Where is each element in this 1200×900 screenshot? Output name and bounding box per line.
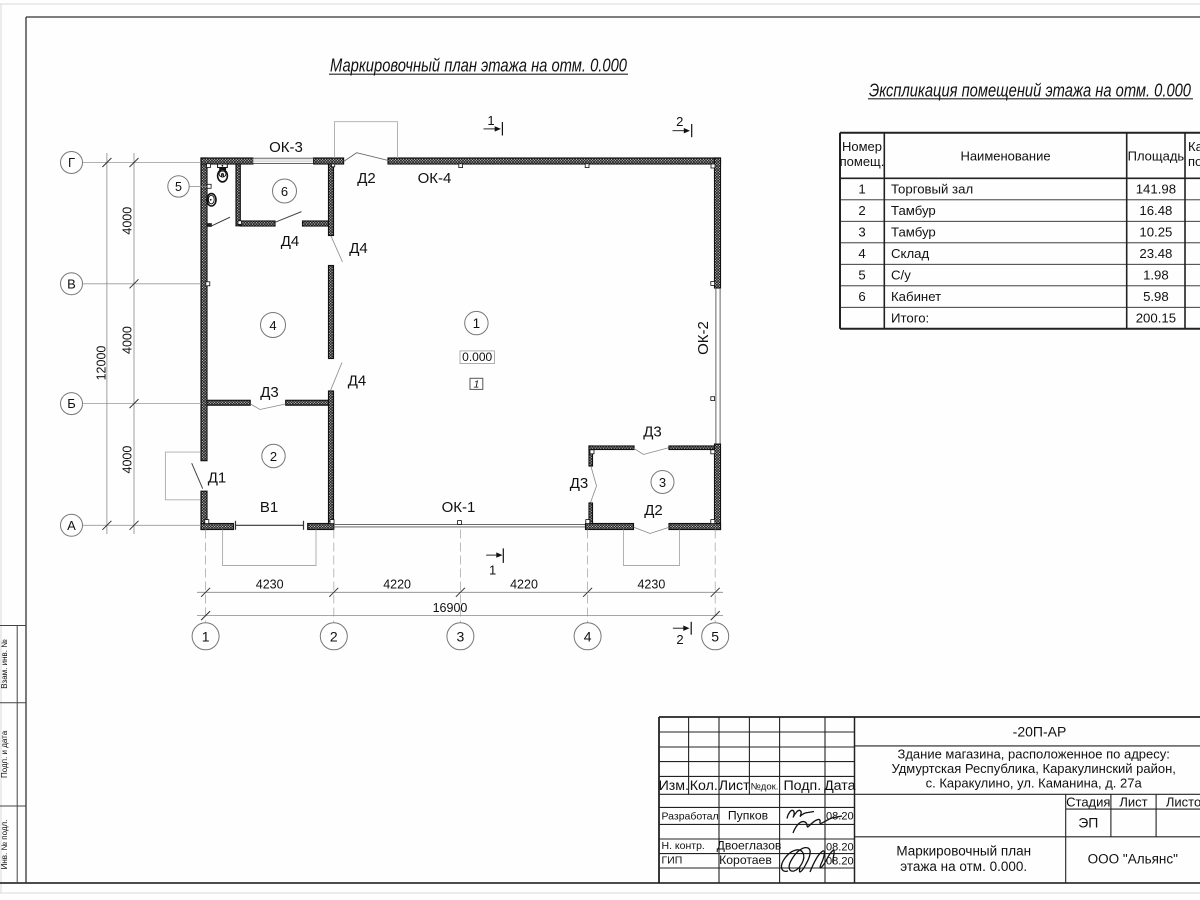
svg-text:1: 1 bbox=[858, 181, 865, 196]
svg-text:ОК-2: ОК-2 bbox=[695, 321, 712, 355]
svg-text:2: 2 bbox=[676, 114, 683, 129]
svg-text:Лист: Лист bbox=[719, 778, 750, 794]
svg-text:ГИП: ГИП bbox=[662, 855, 683, 867]
svg-text:Кол.: Кол. bbox=[690, 778, 718, 794]
svg-text:ООО "Альянс": ООО "Альянс" bbox=[1088, 852, 1178, 867]
svg-text:Склад: Склад bbox=[891, 246, 929, 261]
svg-text:Удмуртская Республика, Каракул: Удмуртская Республика, Каракулинский рай… bbox=[891, 761, 1175, 776]
svg-text:Лист: Лист bbox=[1119, 795, 1147, 810]
svg-text:1: 1 bbox=[473, 378, 479, 390]
svg-text:Коротаев: Коротаев bbox=[719, 853, 772, 867]
svg-text:Тамбур: Тамбур bbox=[891, 203, 936, 218]
svg-text:141.98: 141.98 bbox=[1136, 181, 1176, 196]
svg-text:4: 4 bbox=[858, 246, 865, 261]
svg-text:6: 6 bbox=[281, 184, 288, 199]
svg-text:5.98: 5.98 bbox=[1143, 289, 1169, 304]
svg-text:6: 6 bbox=[858, 289, 865, 304]
svg-text:Д1: Д1 bbox=[208, 470, 227, 487]
svg-text:3: 3 bbox=[858, 224, 865, 239]
svg-text:5: 5 bbox=[711, 628, 719, 644]
svg-text:Изм.: Изм. bbox=[659, 778, 689, 794]
svg-text:1: 1 bbox=[202, 628, 210, 644]
svg-text:Д2: Д2 bbox=[357, 170, 376, 187]
svg-text:4: 4 bbox=[269, 318, 276, 333]
svg-text:1: 1 bbox=[487, 113, 494, 128]
svg-text:ЭП: ЭП bbox=[1078, 815, 1098, 831]
svg-text:2: 2 bbox=[676, 632, 683, 647]
svg-text:Разработал: Разработал bbox=[662, 811, 719, 823]
svg-text:Д4: Д4 bbox=[281, 233, 300, 250]
svg-text:Маркировочный план этажа на от: Маркировочный план этажа на отм. 0.000 bbox=[330, 56, 627, 76]
svg-text:1.98: 1.98 bbox=[1143, 267, 1169, 282]
svg-text:Категория: Категория bbox=[1188, 139, 1200, 154]
svg-text:Подп.: Подп. bbox=[783, 778, 821, 794]
svg-text:Площадь: Площадь bbox=[1128, 149, 1185, 164]
svg-text:Д3: Д3 bbox=[260, 384, 279, 401]
svg-text:ОК-1: ОК-1 bbox=[442, 499, 476, 516]
svg-text:Здание магазина, расположенное: Здание магазина, расположенное по адресу… bbox=[897, 747, 1169, 762]
svg-text:помещения: помещения bbox=[1188, 154, 1200, 169]
svg-text:ОК-3: ОК-3 bbox=[269, 139, 303, 156]
svg-text:Тамбур: Тамбур bbox=[891, 224, 936, 239]
svg-text:4000: 4000 bbox=[121, 446, 135, 474]
svg-text:Н. контр.: Н. контр. bbox=[662, 840, 705, 852]
svg-text:16.48: 16.48 bbox=[1139, 203, 1172, 218]
svg-text:с. Каракулино, ул. Каманина, д: с. Каракулино, ул. Каманина, д. 27а bbox=[926, 776, 1143, 791]
svg-text:Г: Г bbox=[68, 155, 75, 170]
svg-text:№док.: №док. bbox=[751, 782, 779, 793]
svg-text:Взам. инв. №: Взам. инв. № bbox=[0, 639, 9, 689]
svg-text:помещ.: помещ. bbox=[840, 154, 885, 169]
svg-text:Д2: Д2 bbox=[644, 502, 663, 519]
svg-text:12000: 12000 bbox=[95, 346, 109, 381]
svg-text:200.15: 200.15 bbox=[1136, 310, 1176, 325]
svg-text:В1: В1 bbox=[260, 499, 278, 516]
svg-text:4230: 4230 bbox=[637, 578, 665, 592]
svg-text:Инв. № подл.: Инв. № подл. bbox=[0, 820, 9, 870]
svg-text:2: 2 bbox=[330, 628, 338, 644]
svg-text:Экспликация помещений этажа на: Экспликация помещений этажа на отм. 0.00… bbox=[869, 81, 1191, 101]
svg-text:Б: Б bbox=[67, 396, 76, 411]
svg-text:Наименование: Наименование bbox=[960, 149, 1050, 164]
svg-text:Кабинет: Кабинет bbox=[891, 289, 941, 304]
svg-text:4: 4 bbox=[584, 628, 592, 644]
svg-text:С/у: С/у bbox=[891, 267, 911, 282]
svg-text:08.20: 08.20 bbox=[826, 856, 854, 868]
svg-text:Д4: Д4 bbox=[349, 240, 368, 257]
svg-text:3: 3 bbox=[659, 475, 666, 490]
svg-text:Двоеглазов: Двоеглазов bbox=[717, 839, 782, 853]
svg-text:5: 5 bbox=[175, 180, 182, 194]
svg-text:В: В bbox=[67, 276, 76, 291]
svg-text:А: А bbox=[67, 518, 76, 533]
svg-text:Подп. и дата: Подп. и дата bbox=[0, 730, 9, 778]
svg-text:Д3: Д3 bbox=[570, 475, 589, 492]
svg-text:Номер: Номер bbox=[842, 139, 882, 154]
svg-text:4230: 4230 bbox=[256, 578, 284, 592]
svg-text:3: 3 bbox=[457, 628, 465, 644]
svg-text:1: 1 bbox=[489, 562, 496, 577]
svg-text:Стадия: Стадия bbox=[1066, 795, 1110, 810]
svg-text:ОК-4: ОК-4 bbox=[418, 170, 452, 187]
svg-text:-20П-АР: -20П-АР bbox=[1013, 724, 1067, 740]
svg-text:5: 5 bbox=[858, 267, 865, 282]
svg-text:этажа на отм. 0.000.: этажа на отм. 0.000. bbox=[900, 859, 1027, 874]
svg-text:23.48: 23.48 bbox=[1139, 246, 1172, 261]
svg-text:Итого:: Итого: bbox=[891, 310, 929, 325]
svg-text:Пупков: Пупков bbox=[728, 809, 768, 823]
svg-text:Д3: Д3 bbox=[643, 424, 662, 441]
svg-text:4220: 4220 bbox=[510, 578, 538, 592]
svg-text:16900: 16900 bbox=[433, 601, 468, 615]
svg-text:Торговый зал: Торговый зал bbox=[891, 181, 973, 196]
svg-text:2: 2 bbox=[858, 203, 865, 218]
svg-text:Маркировочный план: Маркировочный план bbox=[896, 844, 1031, 859]
svg-text:1: 1 bbox=[473, 316, 481, 331]
svg-text:Листов: Листов bbox=[1166, 795, 1200, 810]
svg-text:4000: 4000 bbox=[121, 207, 135, 235]
svg-text:0.000: 0.000 bbox=[462, 350, 492, 364]
svg-text:10.25: 10.25 bbox=[1139, 224, 1172, 239]
svg-text:08.20: 08.20 bbox=[826, 842, 854, 854]
svg-text:2: 2 bbox=[270, 449, 277, 464]
svg-text:4220: 4220 bbox=[383, 578, 411, 592]
svg-text:4000: 4000 bbox=[121, 326, 135, 354]
svg-text:Д4: Д4 bbox=[348, 373, 367, 390]
svg-text:Дата: Дата bbox=[824, 778, 856, 794]
